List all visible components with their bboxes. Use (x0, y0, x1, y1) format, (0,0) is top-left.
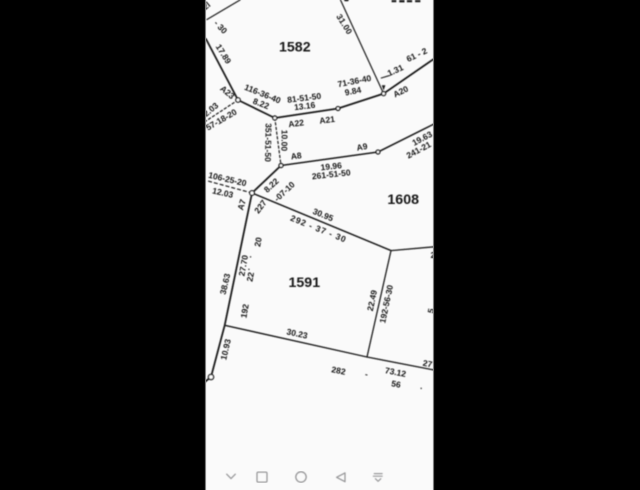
svg-text:10.00: 10.00 (279, 130, 289, 152)
svg-text:A8: A8 (290, 150, 302, 161)
svg-text:351-51-50: 351-51-50 (263, 123, 274, 162)
svg-text:1591: 1591 (289, 275, 321, 291)
svg-text:22: 22 (245, 271, 257, 282)
svg-text:A9: A9 (356, 141, 369, 153)
svg-text:1608: 1608 (387, 192, 419, 208)
svg-text:A22: A22 (288, 117, 305, 129)
svg-text:20: 20 (252, 236, 264, 247)
svg-text:1582: 1582 (279, 40, 311, 56)
svg-text:A21: A21 (319, 114, 336, 126)
